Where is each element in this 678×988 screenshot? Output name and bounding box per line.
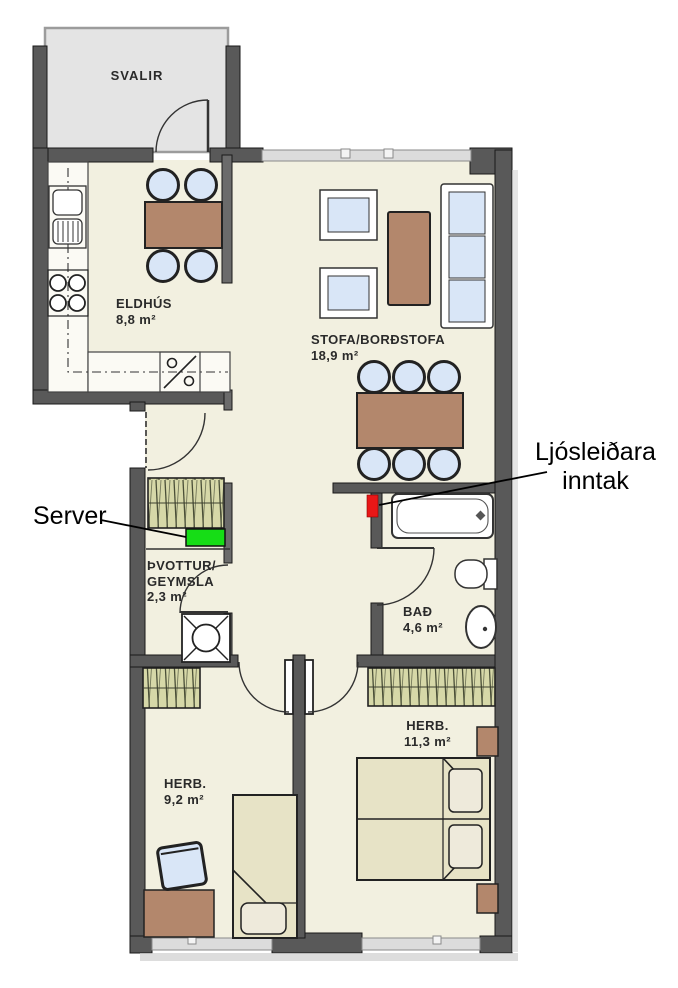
dining-table bbox=[357, 393, 463, 448]
server-annotation-label: Server bbox=[33, 502, 107, 531]
floor-plan: SVALIR ELDHÚS 8,8 m² STOFA/BORÐSTOFA 18,… bbox=[0, 0, 678, 988]
window-mullion-icon bbox=[341, 149, 350, 158]
kitchen-label: ELDHÚS 8,8 m² bbox=[116, 296, 172, 328]
desk-chair bbox=[157, 842, 207, 890]
bedroom-large-label: HERB. 11,3 m² bbox=[385, 718, 470, 750]
pillow bbox=[449, 825, 482, 868]
window-mullion-icon bbox=[384, 149, 393, 158]
bedroom-large-wardrobe bbox=[368, 668, 495, 706]
laundry-label: ÞVOTTUR/ GEYMSLA 2,3 m² bbox=[147, 558, 216, 605]
pillow bbox=[449, 769, 482, 812]
desk bbox=[144, 890, 214, 937]
pillow bbox=[241, 903, 286, 934]
double-bed bbox=[357, 758, 490, 880]
coffee-table bbox=[388, 212, 430, 305]
toilet bbox=[455, 559, 497, 589]
kitchen-table bbox=[145, 202, 222, 248]
armchair-2 bbox=[320, 268, 377, 318]
bathroom-sink bbox=[466, 606, 496, 648]
bathroom-label: BAÐ 4,6 m² bbox=[403, 604, 443, 636]
bedroom-small-label: HERB. 9,2 m² bbox=[164, 776, 206, 808]
sofa bbox=[441, 184, 493, 328]
bathtub bbox=[392, 494, 493, 538]
armchair-1 bbox=[320, 190, 377, 240]
single-bed bbox=[233, 795, 297, 938]
fiber-annotation-label: Ljósleiðara inntak bbox=[518, 438, 673, 496]
balcony-label: SVALIR bbox=[57, 68, 217, 84]
washing-machine bbox=[182, 614, 230, 662]
bedroom-small-wardrobe bbox=[143, 668, 200, 708]
living-dining-label: STOFA/BORÐSTOFA 18,9 m² bbox=[311, 332, 445, 364]
